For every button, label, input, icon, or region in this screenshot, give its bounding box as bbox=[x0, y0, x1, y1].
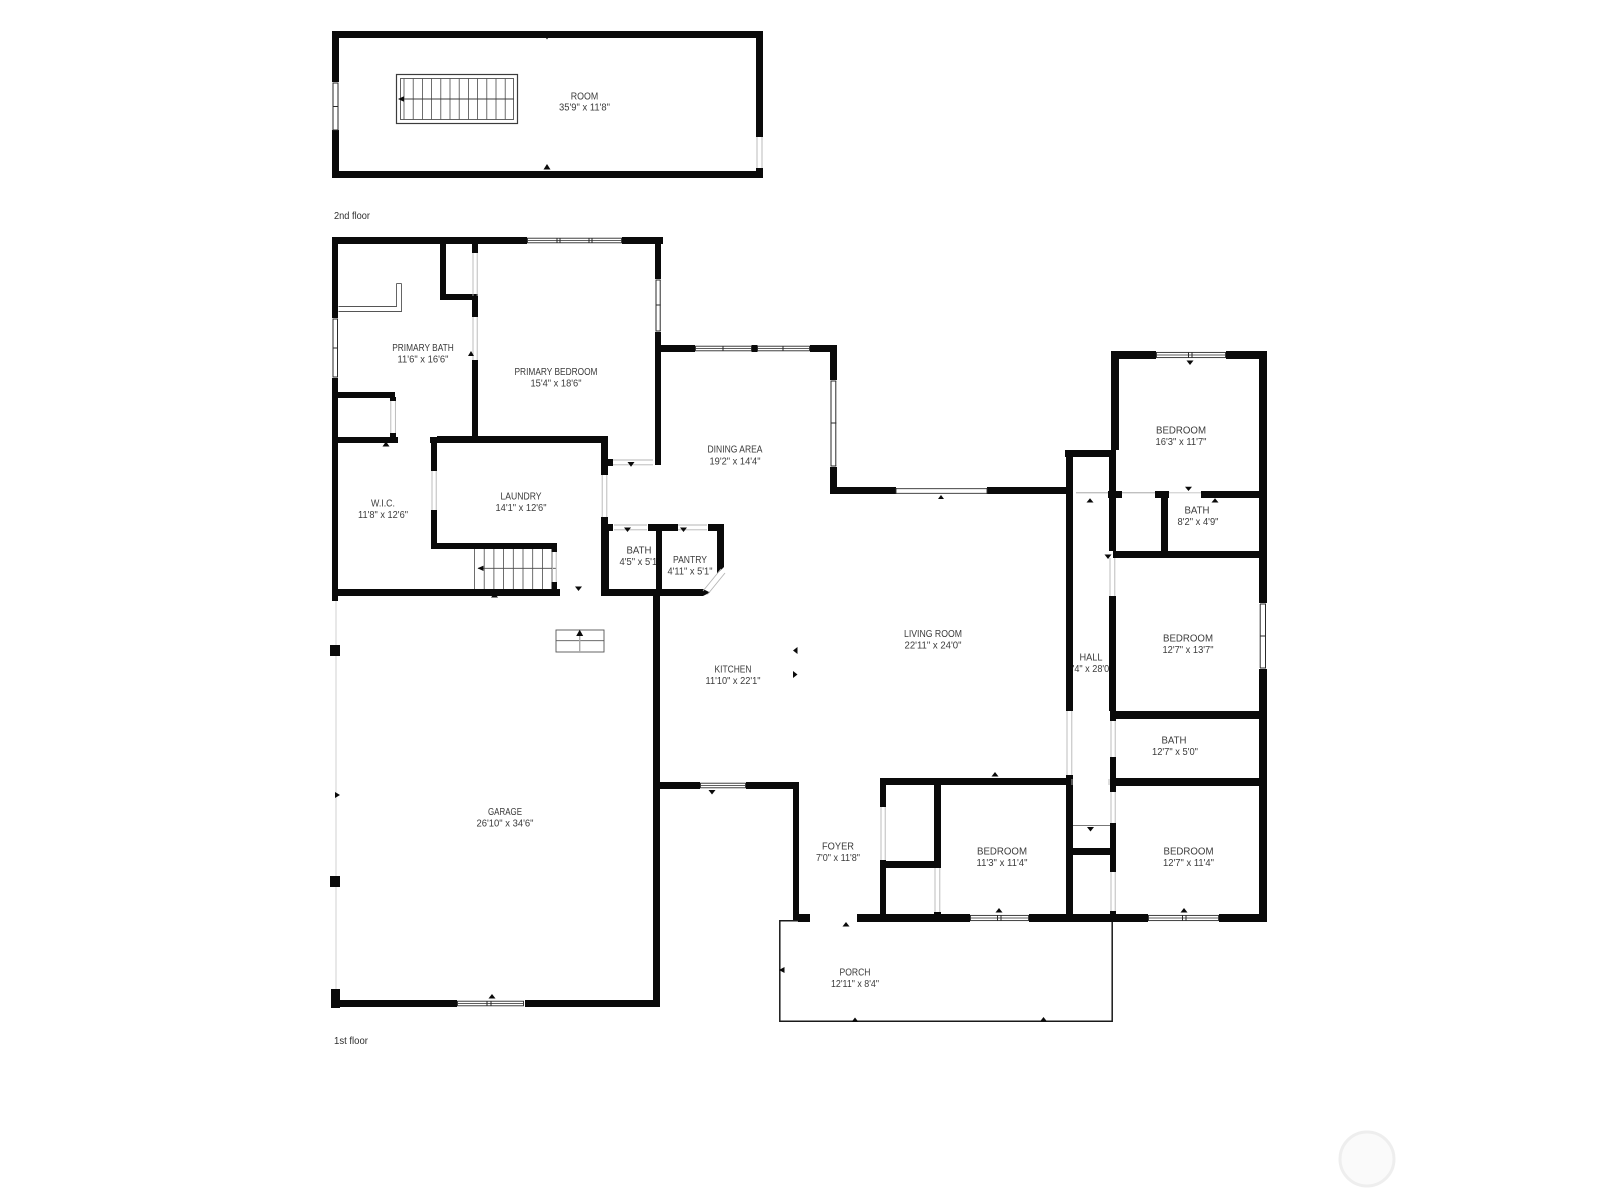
svg-text:BEDROOM: BEDROOM bbox=[1164, 847, 1214, 858]
svg-text:12'11" x 8'4": 12'11" x 8'4" bbox=[831, 979, 879, 990]
svg-text:26'10" x 34'6": 26'10" x 34'6" bbox=[477, 818, 534, 829]
svg-text:W.I.C.: W.I.C. bbox=[371, 499, 395, 510]
svg-text:HALL: HALL bbox=[1080, 653, 1103, 664]
svg-text:LIVING ROOM: LIVING ROOM bbox=[904, 629, 962, 640]
svg-text:1st floor: 1st floor bbox=[334, 1035, 368, 1047]
svg-text:22'11" x 24'0": 22'11" x 24'0" bbox=[905, 640, 962, 651]
svg-text:12'7" x 11'4": 12'7" x 11'4" bbox=[1163, 858, 1214, 869]
svg-text:3'4" x 28'0": 3'4" x 28'0" bbox=[1068, 664, 1113, 675]
svg-text:PRIMARY BATH: PRIMARY BATH bbox=[392, 343, 454, 354]
svg-text:14'1" x 12'6": 14'1" x 12'6" bbox=[496, 503, 547, 514]
svg-text:4'11" x 5'1": 4'11" x 5'1" bbox=[668, 566, 713, 577]
svg-text:35'9" x 11'8": 35'9" x 11'8" bbox=[559, 103, 610, 114]
svg-text:11'6" x 16'6": 11'6" x 16'6" bbox=[398, 354, 449, 365]
svg-text:DINING AREA: DINING AREA bbox=[708, 445, 763, 456]
svg-text:BEDROOM: BEDROOM bbox=[1163, 634, 1213, 645]
svg-text:12'7" x 13'7": 12'7" x 13'7" bbox=[1163, 645, 1214, 656]
svg-text:11'8" x 12'6": 11'8" x 12'6" bbox=[358, 510, 408, 521]
svg-text:11'3" x 11'4": 11'3" x 11'4" bbox=[977, 858, 1028, 869]
svg-text:11'10" x 22'1": 11'10" x 22'1" bbox=[706, 676, 761, 687]
svg-text:7'0" x 11'8": 7'0" x 11'8" bbox=[816, 853, 860, 864]
svg-text:KITCHEN: KITCHEN bbox=[715, 665, 752, 676]
svg-text:BEDROOM: BEDROOM bbox=[1156, 426, 1206, 437]
svg-text:GARAGE: GARAGE bbox=[488, 807, 522, 818]
svg-text:LAUNDRY: LAUNDRY bbox=[501, 492, 542, 503]
svg-text:2nd floor: 2nd floor bbox=[334, 210, 370, 222]
svg-text:BATH: BATH bbox=[1162, 736, 1187, 747]
svg-text:BEDROOM: BEDROOM bbox=[977, 847, 1027, 858]
svg-text:BATH: BATH bbox=[627, 546, 652, 557]
svg-text:12'7" x 5'0": 12'7" x 5'0" bbox=[1152, 747, 1198, 758]
svg-text:BATH: BATH bbox=[1185, 506, 1210, 517]
svg-text:19'2" x 14'4": 19'2" x 14'4" bbox=[710, 456, 761, 467]
svg-text:FOYER: FOYER bbox=[822, 842, 854, 853]
svg-text:PRIMARY BEDROOM: PRIMARY BEDROOM bbox=[515, 367, 598, 378]
svg-text:ROOM: ROOM bbox=[571, 91, 599, 102]
svg-text:PORCH: PORCH bbox=[840, 968, 871, 979]
svg-text:8'2" x 4'9": 8'2" x 4'9" bbox=[1178, 517, 1219, 528]
svg-text:16'3" x 11'7": 16'3" x 11'7" bbox=[1156, 437, 1207, 448]
svg-text:15'4" x 18'6": 15'4" x 18'6" bbox=[531, 378, 582, 389]
svg-text:4'5" x 5'1": 4'5" x 5'1" bbox=[620, 557, 661, 568]
svg-text:PANTRY: PANTRY bbox=[673, 555, 707, 566]
